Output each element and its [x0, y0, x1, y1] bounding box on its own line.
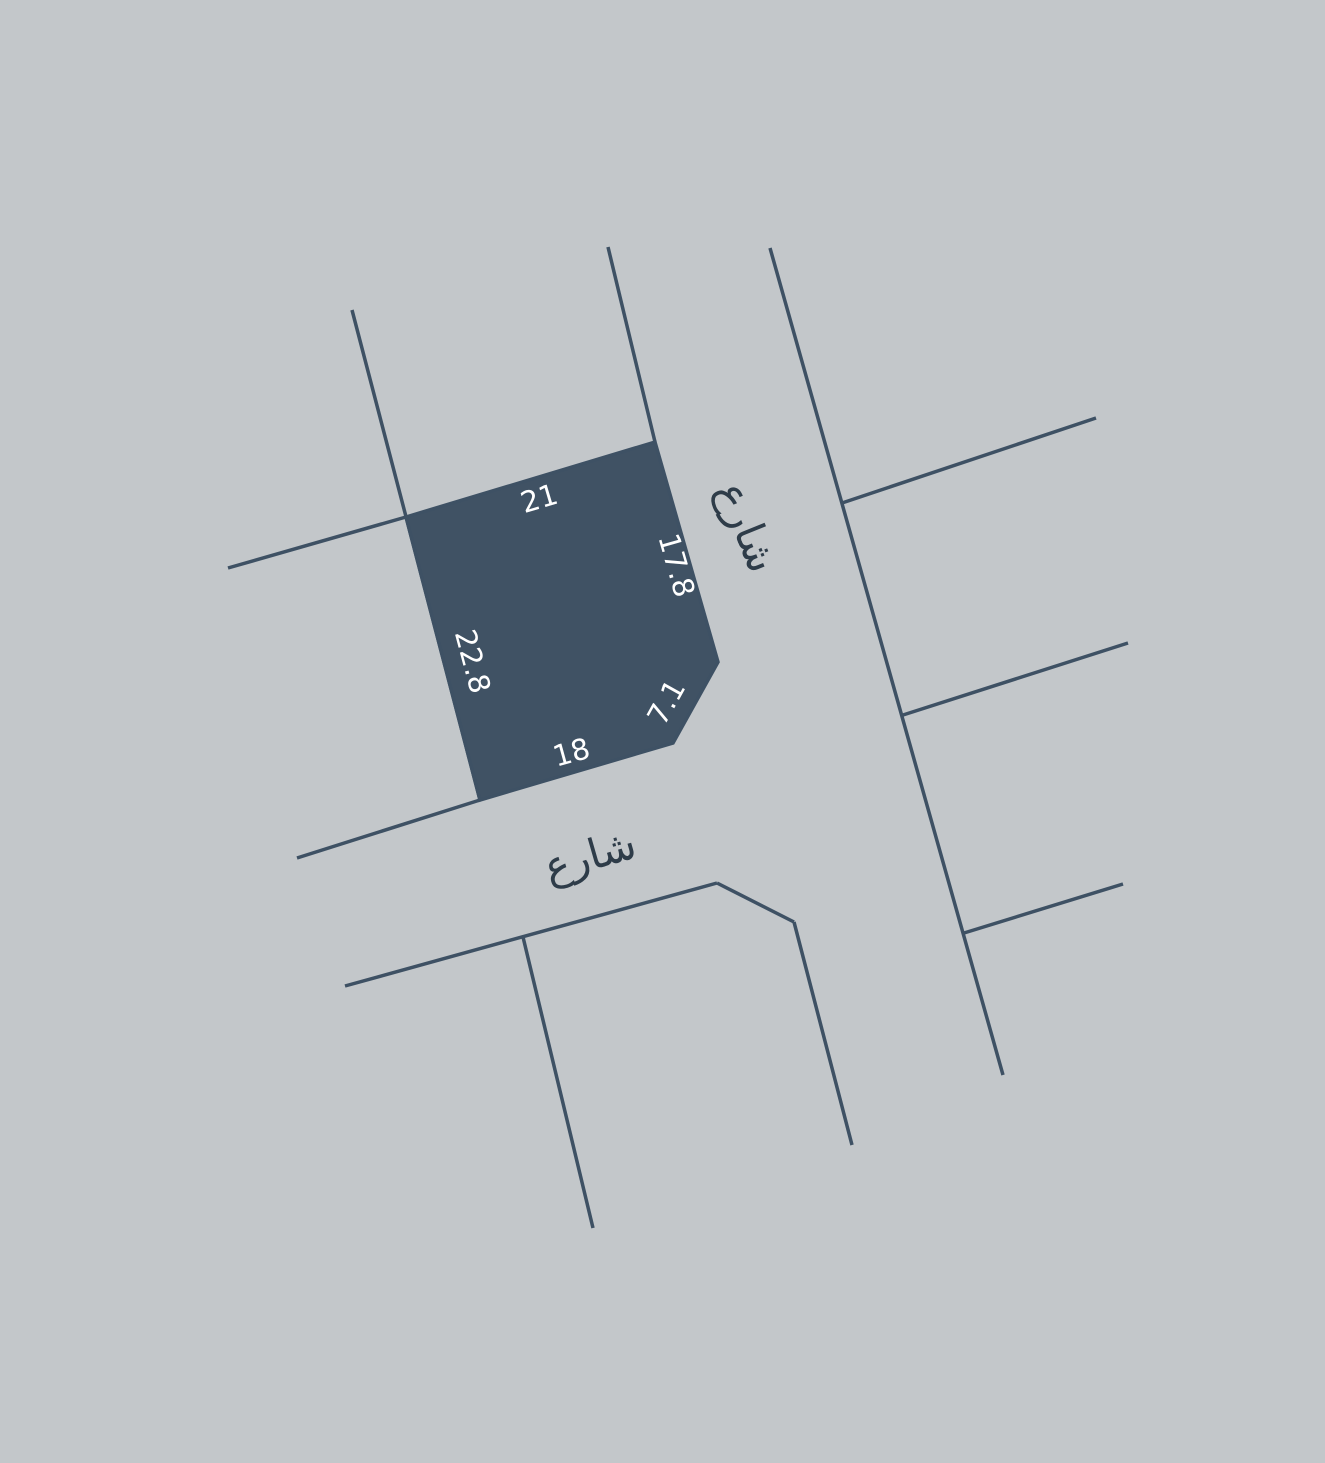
cadastral-map: 21 17.8 7.1 18 22.8 شارع شارع	[0, 0, 1325, 1463]
plot-map-canvas: 21 17.8 7.1 18 22.8 شارع شارع	[0, 0, 1325, 1463]
